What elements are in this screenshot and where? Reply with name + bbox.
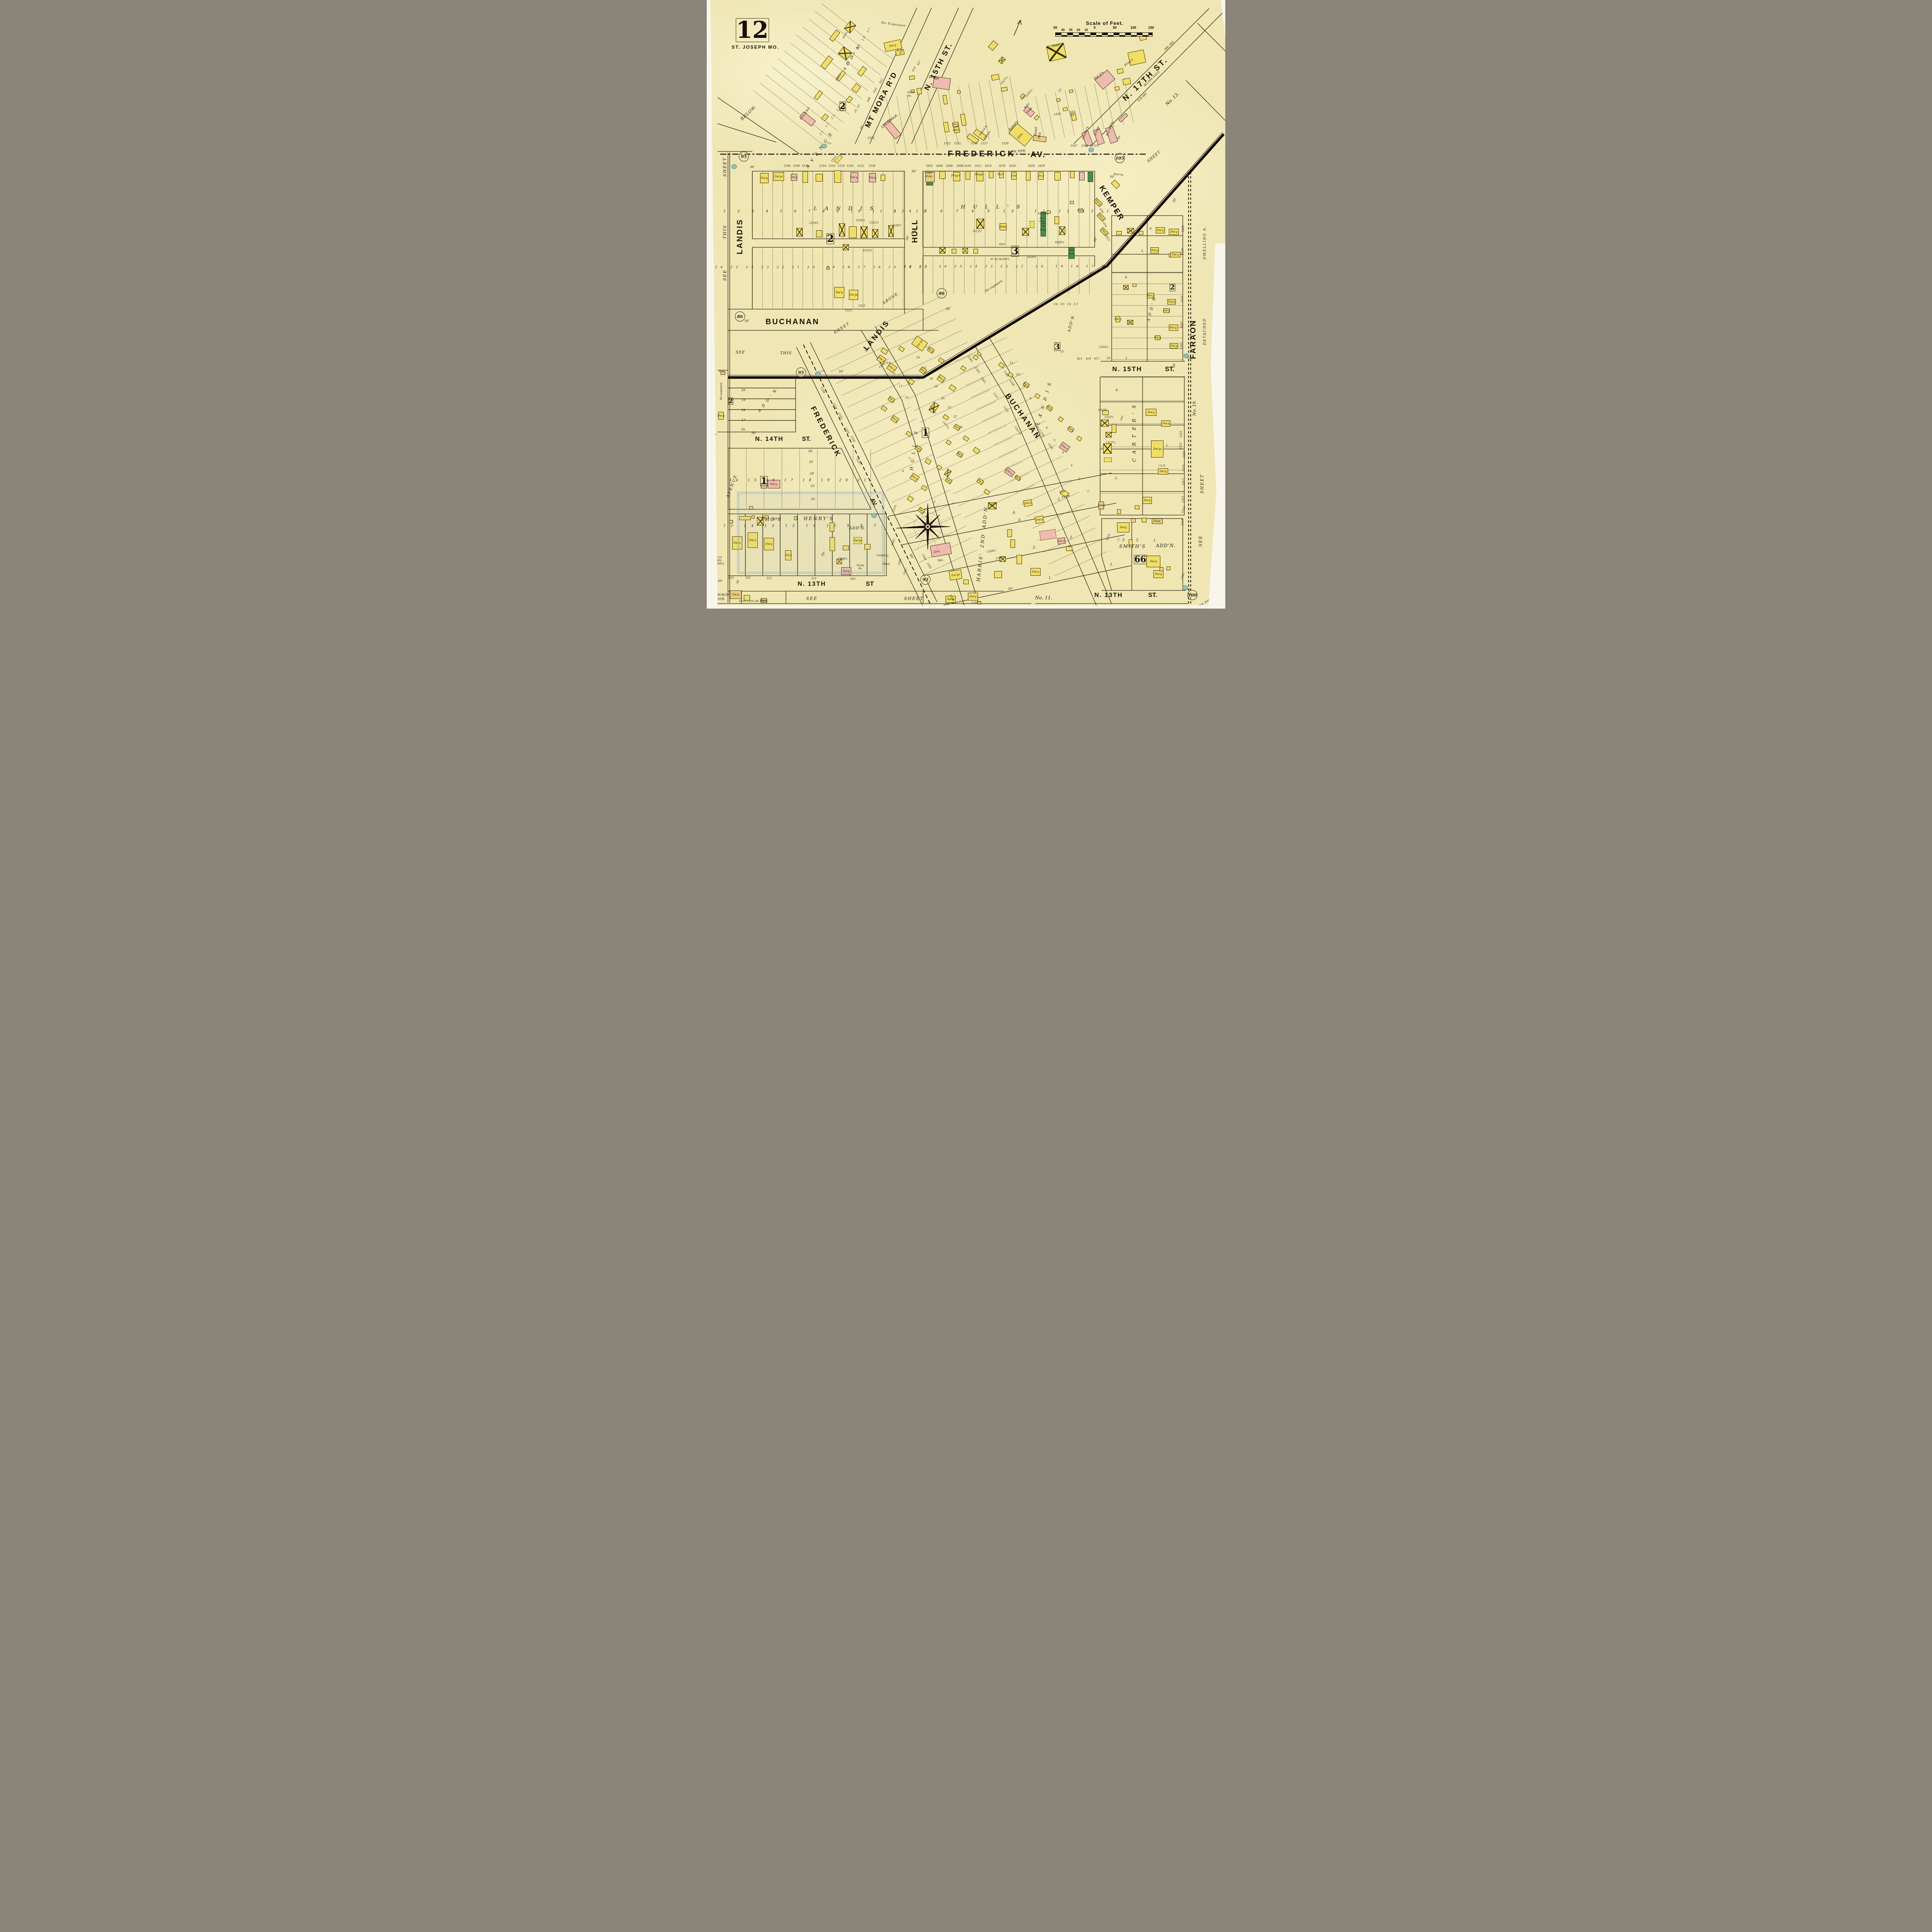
map-label: 50' — [946, 308, 951, 311]
building-footprint: Dw'g — [1170, 343, 1178, 349]
building-footprint — [1066, 546, 1072, 551]
building-footprint — [1127, 228, 1134, 233]
building-label: Dw'g — [1150, 560, 1157, 563]
map-label: 1525 — [944, 143, 951, 145]
map-label: Tin — [1041, 225, 1045, 228]
map-label: Cake — [925, 172, 932, 175]
map-label: 1. — [1166, 444, 1169, 447]
map-label: 18 TO 2 STO. FR. DW'G. — [739, 600, 767, 603]
map-label: 1. — [1153, 539, 1157, 543]
building-footprint — [1010, 539, 1015, 548]
building-footprint — [1139, 231, 1143, 235]
building-footprint — [939, 247, 946, 253]
building-footprint — [1116, 231, 1122, 235]
map-label: 30 — [1069, 29, 1073, 32]
map-label: 1506 — [784, 165, 791, 168]
map-label: FREDERICK — [948, 150, 1016, 158]
building-footprint — [1059, 226, 1065, 235]
map-label: 2. — [1078, 478, 1081, 481]
map-label: Smoke — [857, 565, 865, 567]
building-footprint — [994, 571, 1002, 578]
map-label: 1612 — [975, 165, 981, 168]
building-label: Dw'g — [1163, 309, 1170, 312]
building-footprint: Dw'g — [1146, 556, 1160, 567]
map-label: 150 — [1148, 26, 1154, 30]
building-footprint: Dw'g — [1117, 522, 1129, 532]
map-label: 10. — [1016, 374, 1020, 376]
map-label: 1620½ — [1027, 256, 1037, 259]
building-label: Shed — [1098, 504, 1105, 507]
map-label: 1. — [1087, 490, 1090, 493]
building-footprint: Dw'g — [1161, 420, 1170, 427]
sheet-reference-circle: 86 — [735, 311, 745, 321]
building-footprint — [1070, 171, 1075, 178]
map-label: 4 — [925, 516, 927, 519]
map-label: 1306½. — [838, 558, 849, 561]
map-label: 20 — [1077, 29, 1080, 32]
building-label: Dw'g. — [850, 176, 858, 179]
map-label: LANDIS — [736, 219, 744, 254]
building-footprint: Dw'g. — [850, 172, 858, 182]
building-label: Shed. — [1153, 520, 1161, 523]
map-label: 3 — [1011, 246, 1019, 257]
building-footprint: Dw'g — [1169, 229, 1179, 235]
sheet-reference-circle: 100 — [1187, 590, 1197, 600]
building-label: Dw'g — [1157, 229, 1164, 232]
map-label: 16. — [916, 357, 920, 359]
building-footprint: Dw'g — [1150, 247, 1159, 253]
map-label: 50' — [752, 432, 756, 435]
building-footprint — [926, 182, 933, 185]
map-label: AV. — [1031, 151, 1046, 159]
map-label: 1604 — [936, 165, 943, 168]
building-footprint: Dw'g — [1167, 299, 1176, 304]
building-label: Dw'g — [1036, 517, 1043, 522]
map-label: 1539 — [1002, 143, 1009, 145]
map-label: 15' — [1060, 351, 1065, 354]
map-label: 1321 — [1183, 451, 1186, 458]
building-label: Dw'g — [869, 176, 876, 179]
map-label: 3 4 5 6 7 8 9 10. 11 12 13 14. — [893, 210, 1131, 214]
double-hydrant-marker — [731, 164, 737, 169]
double-hydrant-marker — [1088, 148, 1094, 152]
building-footprint: Dw'g — [1116, 316, 1120, 322]
map-label: Work. — [1068, 253, 1075, 255]
map-label: 10 — [905, 397, 909, 400]
map-label: 17 — [742, 419, 745, 422]
building-footprint — [1022, 228, 1029, 236]
map-label: 2 — [1170, 284, 1175, 291]
building-footprint: Meat. — [954, 126, 960, 133]
map-label: Drug's — [951, 175, 960, 177]
building-footprint: Dw'gs — [1151, 440, 1163, 457]
map-label: 1608-1610. — [956, 165, 972, 168]
map-label: 10' — [1107, 357, 1111, 360]
map-label: 70' TO FR.DW'G — [990, 259, 1009, 261]
double-hydrant-marker — [1184, 354, 1189, 358]
building-label: Gro — [1011, 174, 1016, 177]
map-label: 5. — [1141, 250, 1144, 253]
map-label: 50' — [718, 580, 723, 583]
building-footprint — [816, 174, 823, 182]
map-label: 18 — [930, 378, 933, 381]
map-label: 50 — [1113, 26, 1117, 30]
double-hydrant-marker — [815, 371, 821, 376]
building-label: Dw'g — [888, 365, 895, 371]
building-footprint — [1133, 284, 1136, 287]
map-label: 1618 — [998, 165, 1005, 168]
map-label: 525 — [745, 577, 750, 580]
map-label: 2. — [1115, 477, 1118, 480]
map-label: 417. — [1094, 358, 1100, 361]
map-label: 1526½ — [892, 224, 902, 227]
map-label: 1503½. — [1099, 346, 1109, 349]
map-label: 1 & B. — [1158, 465, 1165, 467]
map-label: 1519½ — [809, 222, 819, 225]
building-footprint: Dw'g — [1057, 537, 1066, 545]
map-label: 4. — [1116, 389, 1119, 392]
map-label: 100 — [1130, 26, 1136, 30]
building-footprint: Dw'gs — [773, 172, 784, 181]
building-footprint: Dw'gs — [949, 570, 962, 580]
map-label: 16. — [741, 428, 746, 431]
map-label: D'g's — [997, 173, 1003, 176]
building-footprint: Dw'g — [1031, 568, 1041, 576]
map-label: 1606 — [946, 165, 953, 168]
building-label: Dw'g — [1170, 230, 1177, 233]
map-label: 1612½ — [973, 230, 982, 233]
building-footprint — [966, 171, 970, 180]
map-label: 1313 — [1182, 519, 1184, 526]
map-label: D.H. — [820, 371, 825, 372]
map-label: 3. — [1018, 519, 1022, 522]
map-label: Shop — [925, 175, 932, 178]
map-label: 1315 — [1182, 496, 1185, 503]
map-label: 1526 — [869, 165, 876, 168]
map-label: Scale of Feet. — [1086, 21, 1124, 26]
building-label: Dw'g — [1032, 570, 1039, 573]
map-label: 25' — [1090, 272, 1095, 275]
building-footprint: Shed — [1099, 502, 1104, 509]
building-footprint — [957, 90, 961, 94]
map-label: 50' — [745, 320, 749, 323]
map-label: 1522½ — [869, 222, 879, 224]
building-label: Dw'g. — [770, 483, 778, 486]
map-label: 7. — [1117, 539, 1120, 542]
map-label: 1520. — [847, 165, 854, 168]
map-label: 1317½. — [1106, 442, 1116, 444]
map-label: 5 — [1054, 439, 1055, 442]
map-label: 20' — [1008, 587, 1013, 590]
map-label: Iron — [1040, 218, 1045, 220]
building-footprint — [1054, 172, 1061, 180]
building-footprint — [1054, 216, 1059, 224]
building-label: Dw'g — [969, 595, 976, 598]
building-footprint — [849, 226, 857, 238]
building-label: Dw'gs — [849, 293, 858, 296]
map-label: 3 — [1122, 539, 1124, 543]
map-label: 1501. — [867, 137, 875, 140]
building-footprint — [872, 229, 878, 238]
map-label: 1523½ — [863, 250, 872, 252]
map-label: 1535 — [971, 143, 978, 145]
building-footprint — [796, 228, 803, 236]
building-label: Dw'g. — [1170, 326, 1177, 329]
map-label: 3 — [1120, 418, 1122, 421]
building-footprint — [816, 230, 822, 237]
map-label: 19 — [934, 386, 938, 388]
building-footprint: Dw'g — [1156, 227, 1165, 233]
map-label: 50' — [750, 166, 755, 169]
building-footprint — [973, 249, 978, 253]
map-label: Drugs — [975, 173, 983, 176]
building-label: Dw'g — [836, 291, 843, 294]
map-label: 4 — [1062, 452, 1064, 454]
building-footprint: Dw'g — [869, 173, 876, 182]
library-stamp — [737, 492, 884, 574]
building-label: Dw'g — [1160, 470, 1167, 473]
map-label: No. 11. — [1035, 595, 1052, 600]
building-label: Dw'gs — [1153, 447, 1162, 451]
building-footprint: Dv'g — [1038, 172, 1044, 180]
map-label: 12. — [892, 374, 896, 376]
map-label: Wood — [1068, 249, 1075, 252]
map-label: 66 — [1134, 555, 1147, 564]
map-label: 1531. — [954, 143, 962, 145]
map-label: 20 — [742, 389, 745, 392]
building-footprint: Dw'g — [1035, 515, 1044, 524]
map-label: 6 — [902, 470, 904, 473]
map-label: 21. — [947, 406, 952, 409]
map-label: 9 — [1024, 385, 1025, 388]
map-label: 1628½ — [1055, 241, 1065, 244]
building-footprint: Shed. — [1152, 519, 1163, 524]
map-label: ST. — [1148, 592, 1157, 599]
building-label: Dw'g — [1162, 422, 1169, 425]
map-label: 22. — [811, 498, 816, 501]
sheet-reference-circle: 95 — [739, 151, 749, 162]
map-label: ADD'N. — [1156, 543, 1176, 548]
building-footprint — [839, 223, 845, 236]
sheet-reference-circle: 86 — [937, 288, 947, 298]
map-label: 6. — [1150, 227, 1153, 230]
building-label: Dv'g — [1038, 174, 1044, 177]
map-label: 1520½ — [856, 219, 866, 222]
building-footprint: Dw'g — [968, 593, 978, 600]
building-footprint: Shed. — [1000, 223, 1007, 230]
map-label: DETACHED — [1204, 318, 1207, 345]
building-footprint: Dw'g — [760, 173, 769, 183]
map-label: SMITH'S — [1119, 544, 1146, 549]
building-footprint — [1070, 201, 1074, 204]
map-label: Shop. — [1040, 229, 1046, 231]
building-footprint — [952, 249, 956, 253]
map-label: 1511 — [1181, 296, 1184, 303]
building-footprint: Dw'g — [1155, 335, 1160, 340]
map-label: 1319 — [1183, 465, 1185, 472]
map-label: ST. — [802, 436, 811, 442]
building-label: Dw'g — [791, 176, 798, 179]
map-label: 19 — [742, 399, 745, 402]
building-footprint: Dw'gs — [849, 290, 858, 300]
building-footprint — [1101, 420, 1109, 427]
map-label: 50 — [1053, 26, 1057, 30]
map-label: 1319½ — [1098, 409, 1108, 412]
building-label: Dw'g — [1170, 344, 1177, 347]
map-label: 505. — [850, 578, 856, 581]
map-label: 421. — [1077, 358, 1083, 361]
building-footprint — [989, 171, 993, 178]
map-label: 1317 — [1182, 478, 1185, 485]
map-label: 623 — [728, 577, 733, 580]
building-footprint: Dw'g — [1163, 308, 1170, 313]
map-label: 7 — [908, 458, 910, 461]
building-footprint — [1160, 567, 1163, 571]
map-label: FARAON — [1189, 320, 1197, 359]
map-label: 1523 — [1182, 225, 1185, 232]
map-label: N. 14TH — [755, 436, 784, 442]
building-footprint — [1117, 509, 1121, 514]
building-label: Dw'g — [1148, 411, 1155, 414]
map-label: D.H. — [1187, 358, 1192, 360]
map-label: 1325½ — [1104, 416, 1114, 419]
compass-rose-icon — [895, 498, 961, 556]
map-label: 1 — [922, 428, 929, 438]
map-label: Ho. — [908, 95, 912, 97]
building-footprint — [1104, 457, 1112, 462]
map-label: 1518 — [838, 165, 845, 168]
map-label: Smoke — [907, 92, 915, 94]
map-label: 13 — [887, 362, 890, 365]
map-label: SEE — [736, 351, 745, 355]
map-label: 1523 — [858, 305, 865, 308]
map-label: 1514 — [819, 165, 826, 168]
building-label: Dw'g — [1168, 300, 1175, 303]
map-label: SHEET — [904, 597, 924, 601]
map-label: H U L L ' S — [961, 205, 1023, 210]
building-footprint — [729, 520, 733, 523]
building-footprint — [1105, 432, 1112, 437]
map-label: Shed. — [719, 371, 725, 373]
building-footprint: Dw'g. — [1169, 325, 1178, 331]
map-label: BUCHANAN — [765, 318, 820, 326]
map-label: 1503 — [1180, 342, 1183, 349]
map-label: 1507 — [1181, 321, 1184, 328]
map-label: 1551. — [1092, 145, 1099, 148]
building-footprint — [1088, 172, 1093, 182]
building-label: Meat. — [952, 128, 961, 132]
map-label: 1549 — [1081, 145, 1088, 148]
building-label: Dw'g — [1058, 539, 1065, 543]
sheet-reference-circle: 105 — [1115, 153, 1125, 163]
map-label: 521. — [767, 577, 773, 580]
map-label: DWELLING S. — [1204, 226, 1207, 259]
map-label: 1323 — [1180, 442, 1182, 449]
map-label: THIS — [723, 225, 727, 239]
map-label: 17 — [923, 367, 927, 370]
map-label: STR. — [718, 598, 725, 601]
map-label: 36 35 34 33 — [1054, 303, 1078, 306]
map-label: 2. — [1033, 546, 1036, 550]
building-footprint — [1017, 555, 1022, 564]
building-footprint — [1007, 529, 1012, 537]
building-footprint — [1127, 320, 1133, 325]
map-label: 50' — [839, 370, 844, 373]
building-footprint: Dw'g — [1143, 497, 1152, 504]
building-footprint — [1131, 519, 1136, 522]
map-label: 1522 — [857, 165, 864, 168]
map-label: 15 14 13 12 11 10 9 8 7. — [723, 525, 887, 528]
map-label: 1508 — [793, 165, 800, 168]
building-label: Dw'g — [1151, 249, 1158, 252]
map-label: ST. JOSEPH MO. — [731, 45, 779, 49]
map-label: 26 — [808, 450, 812, 453]
building-footprint: Dw'g — [730, 590, 742, 599]
map-label: 2. — [1070, 536, 1073, 540]
building-label: Dv'g — [952, 122, 959, 127]
map-label: 10 — [1085, 29, 1088, 32]
map-label: 2 — [1136, 539, 1138, 543]
building-label: Dw'g — [1120, 526, 1127, 529]
map-label: 0 — [1094, 26, 1095, 30]
map-label: 14 15 16 17 18 19 20 21. — [730, 479, 876, 483]
map-label: 2 — [827, 233, 834, 244]
map-label: 1 — [1125, 357, 1127, 360]
map-label: SHEET — [1200, 474, 1204, 494]
building-label: Dw'g — [761, 177, 768, 180]
building-footprint — [803, 171, 808, 183]
map-label: 7 — [1038, 414, 1040, 417]
building-footprint: Dw'g — [834, 287, 844, 298]
map-label: 12 — [736, 18, 769, 42]
building-label: Dw'gs — [951, 573, 960, 577]
map-label: 1624 — [1028, 165, 1035, 168]
building-label: Dw'g — [1061, 444, 1068, 451]
map-label: 5 — [934, 501, 935, 504]
map-label: 40 — [1061, 29, 1065, 32]
map-label: 1602 — [926, 165, 933, 168]
building-footprint — [881, 175, 885, 181]
map-label: 11 — [899, 385, 903, 388]
map-label: 1620. — [1009, 165, 1017, 168]
map-label: 6 — [1046, 427, 1048, 430]
building-footprint: Dw'g — [1153, 570, 1163, 578]
map-label: 3. — [1058, 498, 1061, 502]
map-label: Hay. — [1037, 132, 1041, 139]
map-label: 23 — [959, 426, 963, 429]
map-label: ST — [866, 581, 874, 587]
map-label: Ho. — [859, 568, 863, 570]
map-label: 11. — [1010, 362, 1014, 365]
building-footprint: Gro — [1011, 172, 1017, 180]
building-label: Dw'gs — [774, 175, 783, 178]
map-label: 4. — [1013, 512, 1016, 515]
map-label: 26 25 24 23 22 21 20. 19 18 17 16 15 14 … — [715, 266, 930, 269]
building-footprint — [963, 248, 968, 253]
map-label: 50' — [1110, 175, 1114, 179]
building-footprint — [917, 88, 922, 95]
map-label: 1. — [1110, 563, 1114, 567]
building-footprint: Dw'g — [791, 174, 797, 181]
map-label: SEE — [1199, 535, 1203, 547]
map-label: HENRY'S — [804, 516, 834, 521]
building-label: Dw'g — [1172, 253, 1179, 256]
map-label: 1614 — [985, 165, 992, 168]
map-label: Meat. — [883, 563, 891, 566]
map-label: 1236½. — [971, 602, 981, 605]
map-label: 28 27. 26 25 24 23 22 21. 20. 19 18 17 1… — [904, 265, 1112, 268]
building-footprint — [888, 225, 894, 237]
